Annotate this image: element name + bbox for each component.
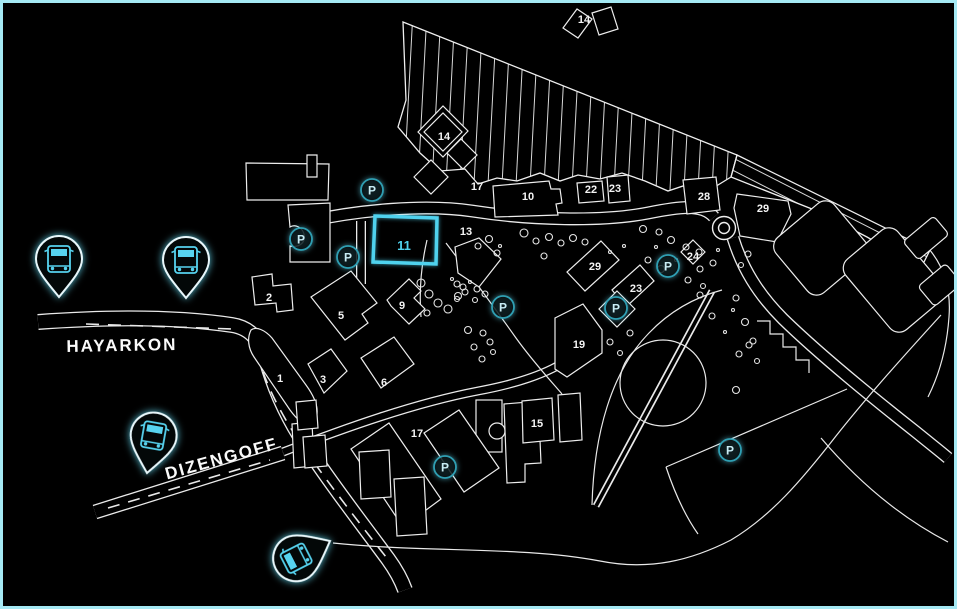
building-label-11-highlighted: 11 bbox=[397, 238, 411, 253]
tree-icon bbox=[471, 344, 477, 350]
building-label-23: 23 bbox=[630, 283, 642, 295]
bus-stop-pin[interactable] bbox=[163, 237, 209, 298]
site-map-page: 12356910131414151717192223232428292911 H… bbox=[0, 0, 957, 609]
tree-icon bbox=[520, 229, 528, 237]
building-label-14: 14 bbox=[578, 14, 591, 26]
tree-icon bbox=[474, 286, 480, 292]
parking-letter: P bbox=[612, 302, 620, 316]
tree-icon bbox=[424, 310, 430, 316]
parking-letter: P bbox=[344, 251, 352, 265]
tree-icon bbox=[746, 342, 752, 348]
parking-marker[interactable]: P bbox=[657, 255, 679, 277]
tree-icon bbox=[558, 240, 564, 246]
building-label-29: 29 bbox=[589, 261, 601, 273]
tree-icon bbox=[709, 313, 715, 319]
bus-stop-pin[interactable] bbox=[265, 521, 340, 590]
parking-letter: P bbox=[297, 233, 305, 247]
tree-icon bbox=[469, 281, 472, 284]
building-label-19: 19 bbox=[573, 339, 585, 351]
tree-icon bbox=[732, 309, 735, 312]
street-label-hayarkon: HAYARKON bbox=[66, 335, 177, 356]
parking-marker[interactable]: P bbox=[290, 228, 312, 250]
building-label-13: 13 bbox=[460, 226, 472, 238]
tree-icon bbox=[444, 305, 452, 313]
tree-icon bbox=[736, 351, 742, 357]
tree-icon bbox=[570, 235, 577, 242]
parking-marker[interactable]: P bbox=[719, 439, 741, 461]
parking-marker[interactable]: P bbox=[605, 297, 627, 319]
tree-icon bbox=[473, 298, 478, 303]
parking-letter: P bbox=[441, 461, 449, 475]
tree-icon bbox=[733, 295, 739, 301]
tree-icon bbox=[627, 330, 633, 336]
street-labels-layer: HAYARKONDIZENGOFF bbox=[66, 335, 280, 483]
building-label-9: 9 bbox=[399, 300, 405, 312]
tree-icon bbox=[499, 245, 502, 248]
tree-icon bbox=[480, 330, 486, 336]
tree-icon bbox=[755, 359, 760, 364]
building-label-14: 14 bbox=[438, 131, 451, 143]
tree-icon bbox=[623, 245, 626, 248]
building-label-17: 17 bbox=[411, 428, 423, 440]
building-label-2: 2 bbox=[266, 292, 272, 304]
building-label-10: 10 bbox=[522, 191, 534, 203]
tree-icon bbox=[710, 260, 716, 266]
tree-icon bbox=[425, 290, 433, 298]
tree-icon bbox=[465, 327, 472, 334]
tree-icon bbox=[454, 281, 460, 287]
buildings-layer bbox=[246, 7, 957, 536]
tree-icon bbox=[607, 339, 613, 345]
tree-icon bbox=[701, 284, 706, 289]
tree-icon bbox=[491, 350, 496, 355]
tree-icon bbox=[655, 246, 658, 249]
tree-icon bbox=[717, 249, 720, 252]
parking-marker[interactable]: P bbox=[361, 179, 383, 201]
building-label-28: 28 bbox=[698, 191, 710, 203]
building-label-22: 22 bbox=[585, 184, 597, 196]
tree-icon bbox=[742, 319, 749, 326]
tree-icon bbox=[455, 293, 462, 300]
tree-icon bbox=[487, 339, 493, 345]
tree-icon bbox=[724, 331, 727, 334]
building-label-17: 17 bbox=[471, 181, 483, 193]
building-label-3: 3 bbox=[320, 374, 326, 386]
parking-letter: P bbox=[664, 260, 672, 274]
parking-marker[interactable]: P bbox=[337, 246, 359, 268]
parking-letter: P bbox=[726, 444, 734, 458]
tree-icon bbox=[451, 278, 454, 281]
bus-stop-pin[interactable] bbox=[36, 236, 82, 297]
tree-icon bbox=[546, 234, 553, 241]
tree-icon bbox=[533, 238, 539, 244]
tree-icon bbox=[640, 226, 647, 233]
building-label-23: 23 bbox=[609, 183, 621, 195]
building-label-24: 24 bbox=[687, 251, 700, 263]
parking-marker[interactable]: P bbox=[492, 296, 514, 318]
tree-icon bbox=[697, 266, 703, 272]
tree-icon bbox=[541, 253, 547, 259]
building-label-1: 1 bbox=[277, 373, 283, 385]
tree-icon bbox=[668, 237, 675, 244]
parking-marker[interactable]: P bbox=[434, 456, 456, 478]
tree-icon bbox=[645, 257, 651, 263]
parking-letter: P bbox=[499, 301, 507, 315]
tree-icon bbox=[733, 387, 740, 394]
building-label-6: 6 bbox=[381, 377, 387, 389]
tree-icon bbox=[434, 299, 442, 307]
tree-icon bbox=[685, 277, 691, 283]
parking-letter: P bbox=[368, 184, 376, 198]
site-map: 12356910131414151717192223232428292911 H… bbox=[0, 0, 957, 609]
tree-icon bbox=[656, 229, 662, 235]
tree-icon bbox=[486, 236, 493, 243]
building-label-15: 15 bbox=[531, 418, 543, 430]
tree-icon bbox=[745, 251, 751, 257]
tree-icon bbox=[479, 356, 485, 362]
building-label-5: 5 bbox=[338, 310, 344, 322]
tree-icon bbox=[618, 351, 623, 356]
roundabout bbox=[713, 217, 736, 240]
building-label-29: 29 bbox=[757, 203, 769, 215]
tree-icon bbox=[582, 239, 588, 245]
